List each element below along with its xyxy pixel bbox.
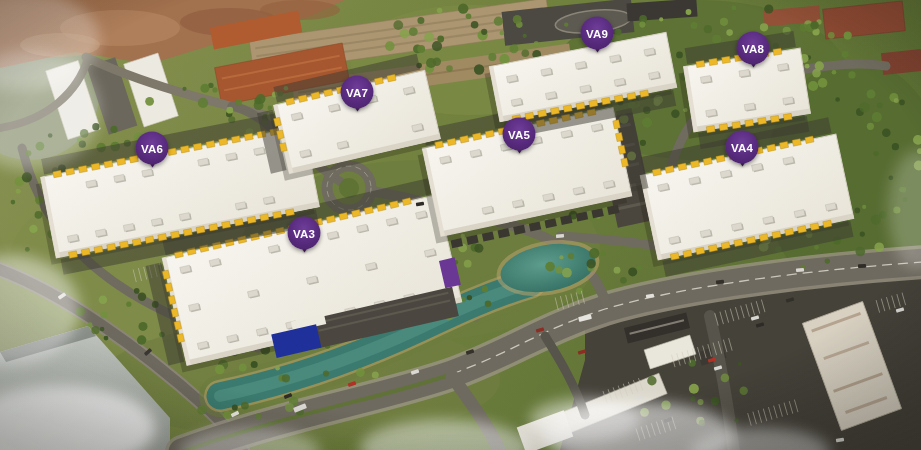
- pin-label: VA5: [503, 118, 536, 151]
- location-pin-va4[interactable]: VA4: [726, 131, 759, 164]
- location-pin-va3[interactable]: VA3: [288, 217, 321, 250]
- location-pin-va5[interactable]: VA5: [503, 118, 536, 151]
- pin-label: VA7: [341, 76, 374, 109]
- location-pin-va9[interactable]: VA9: [581, 17, 614, 50]
- pin-label: VA8: [737, 32, 770, 65]
- pin-label: VA4: [726, 131, 759, 164]
- location-pin-va8[interactable]: VA8: [737, 32, 770, 65]
- location-pin-va6[interactable]: VA6: [136, 132, 169, 165]
- aerial-site-plan: VA3VA4VA5VA6VA7VA8VA9: [0, 0, 921, 450]
- location-pin-va7[interactable]: VA7: [341, 76, 374, 109]
- location-pins: VA3VA4VA5VA6VA7VA8VA9: [0, 0, 921, 450]
- pin-label: VA6: [136, 132, 169, 165]
- pin-label: VA9: [581, 17, 614, 50]
- pin-label: VA3: [288, 217, 321, 250]
